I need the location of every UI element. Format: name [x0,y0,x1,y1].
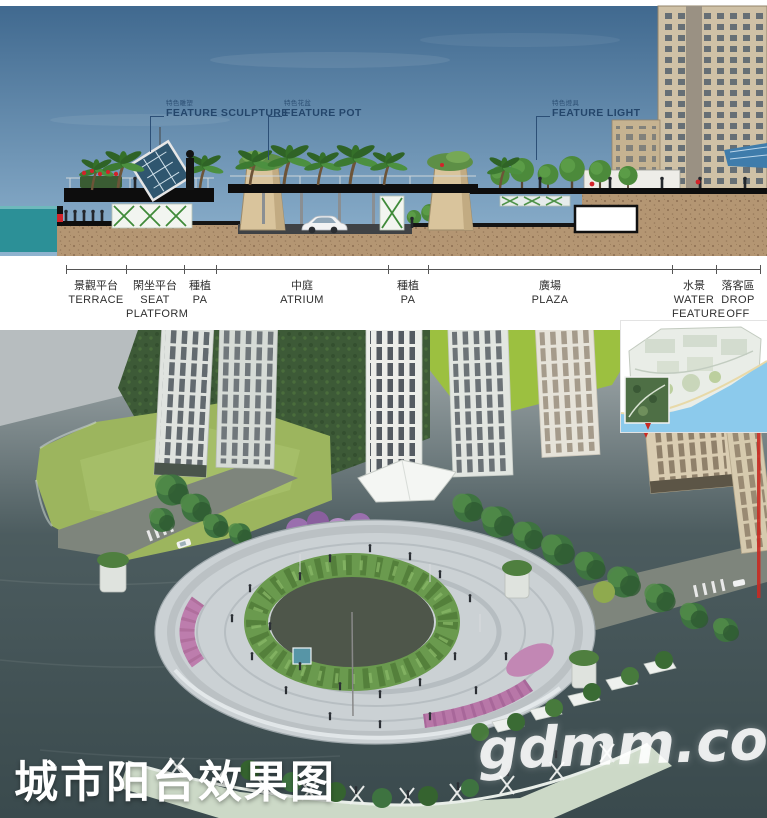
leader-line [150,116,151,152]
dimension-tick [216,265,217,274]
key-map-art [621,321,767,432]
leader-line [536,116,550,117]
basement-void [575,206,637,232]
flag-pole [352,612,353,716]
trellis-center [380,196,404,230]
dimension-tick [428,265,429,274]
red-reference-line [757,430,761,598]
callout-code: 特色燈具 [552,101,640,108]
zone-label-terrace: 景觀平台 TERRACE [66,277,126,307]
dimension-tick [672,265,673,274]
callout-label: FEATURE LIGHT [552,108,640,119]
zone-label-plaza: 廣場 PLAZA [428,277,672,307]
screenshot: 特色雕塑 FEATURE SCULPTURE 特色花盆 FEATURE POT … [0,0,767,818]
callout-code: 特色雕塑 [166,101,289,108]
dimension-tick [760,265,761,274]
section-drawing-panel: 特色雕塑 FEATURE SCULPTURE 特色花盆 FEATURE POT … [0,0,767,330]
trellis-left [112,204,192,228]
leader-line [268,116,269,160]
dimension-tick [66,265,67,274]
zone-label-seat-platform: 閑坐平台 SEAT PLATFORM [126,277,184,322]
dimension-tick [716,265,717,274]
dimension-line [66,269,760,270]
callout-label: FEATURE POT [284,108,362,119]
zone-label-atrium: 中庭 ATRIUM [216,277,388,307]
bridge-deck [228,184,478,193]
red-accent [57,214,63,222]
dimension-tick [388,265,389,274]
glass-art-feature [293,648,311,664]
render-caption: 城市阳台效果图 [14,746,336,810]
tower [216,330,278,469]
yellow-green-tree [593,581,615,603]
leader-line [268,116,282,117]
watermark: gdmm.com [477,706,767,783]
callout-feature-light: 特色燈具 FEATURE LIGHT [552,101,640,119]
key-map-inset [621,321,767,432]
highlight-area [625,377,669,423]
zone-label-drop-off: 落客區 DROP OFF [716,277,760,322]
sea [0,206,57,252]
zone-label-water-feature: 水景 WATER FEATURE [672,277,716,322]
zone-label-pa-1: 種植 PA [184,277,216,307]
zone-label-pa-2: 種植 PA [388,277,428,307]
dimension-tick [184,265,185,274]
leader-line [536,116,537,160]
tower [448,330,513,477]
tower [535,330,600,457]
leader-line [150,116,164,117]
callout-code: 特色花盆 [284,101,362,108]
tower [154,330,214,477]
callout-label: FEATURE SCULPTURE [166,108,289,119]
trellis-right [500,196,570,206]
dimension-tick [126,265,127,274]
callout-feature-pot: 特色花盆 FEATURE POT [284,101,362,119]
